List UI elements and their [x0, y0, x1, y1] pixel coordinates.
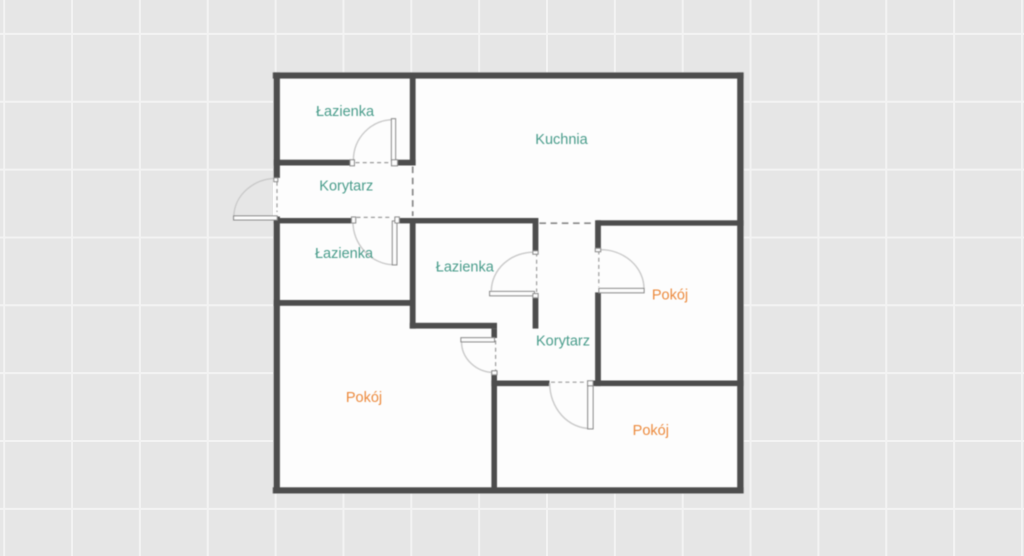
svg-text:Pokój: Pokój [652, 287, 688, 303]
svg-text:Korytarz: Korytarz [319, 179, 373, 195]
svg-text:Kuchnia: Kuchnia [535, 132, 588, 148]
svg-text:Pokój: Pokój [346, 390, 382, 406]
svg-text:Korytarz: Korytarz [536, 333, 590, 349]
svg-text:Łazienka: Łazienka [436, 259, 495, 275]
svg-text:Łazienka: Łazienka [315, 246, 374, 262]
svg-text:Pokój: Pokój [633, 423, 669, 439]
svg-text:Łazienka: Łazienka [316, 104, 375, 120]
